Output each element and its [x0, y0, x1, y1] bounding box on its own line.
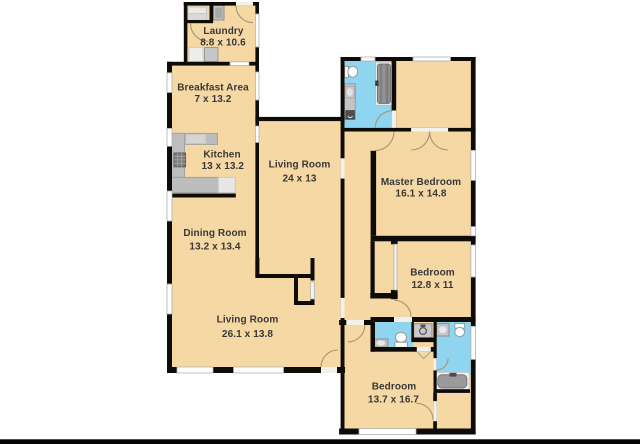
svg-text:7 x 13.2: 7 x 13.2 [195, 94, 232, 105]
svg-text:8.8 x 10.6: 8.8 x 10.6 [200, 38, 246, 49]
svg-text:Bedroom: Bedroom [410, 268, 455, 279]
svg-text:Living Room: Living Room [217, 315, 279, 326]
svg-text:24 x 13: 24 x 13 [282, 174, 316, 185]
svg-text:13 x 13.2: 13 x 13.2 [201, 161, 244, 172]
svg-text:12.8 x 11: 12.8 x 11 [411, 280, 453, 291]
svg-text:26.1 x 13.8: 26.1 x 13.8 [222, 329, 273, 340]
svg-text:Dining Room: Dining Room [183, 228, 246, 239]
svg-text:Kitchen: Kitchen [203, 150, 240, 161]
svg-text:Master Bedroom: Master Bedroom [381, 177, 461, 188]
svg-text:Breakfast Area: Breakfast Area [177, 82, 249, 93]
svg-text:13.2 x 13.4: 13.2 x 13.4 [189, 242, 240, 253]
svg-text:Living Room: Living Room [269, 160, 331, 171]
svg-text:Bedroom: Bedroom [372, 382, 417, 393]
svg-text:Laundry: Laundry [203, 26, 243, 37]
svg-text:13.7 x 16.7: 13.7 x 16.7 [368, 395, 419, 406]
svg-text:16.1 x 14.8: 16.1 x 14.8 [395, 189, 446, 200]
